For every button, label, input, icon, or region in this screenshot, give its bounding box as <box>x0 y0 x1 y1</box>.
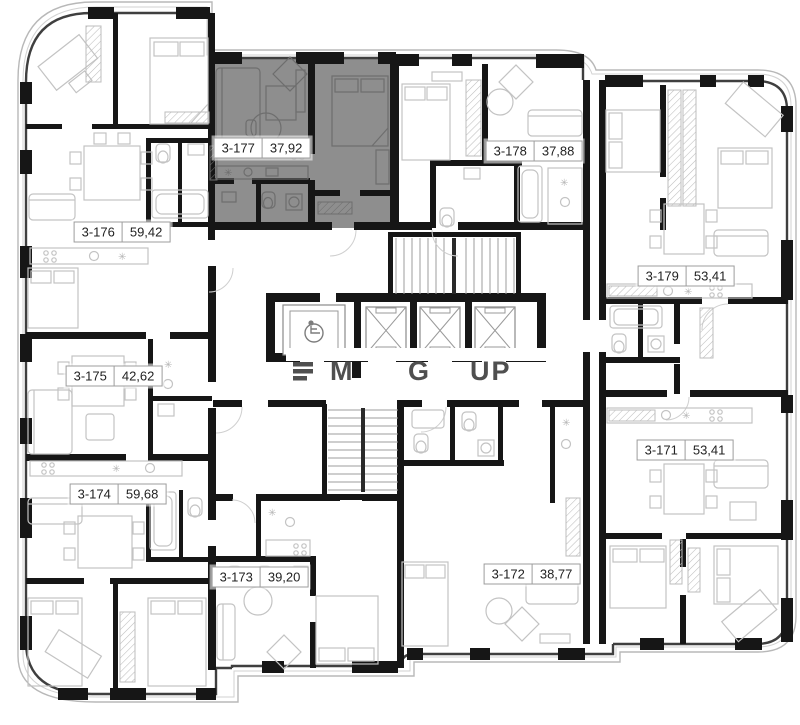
svg-text:✳: ✳ <box>224 168 232 179</box>
unit-chip-3-173[interactable]: 3-17339,20 <box>212 567 309 588</box>
unit-id: 3-177 <box>215 139 262 158</box>
unit-id: 3-179 <box>639 267 686 286</box>
svg-text:✳: ✳ <box>268 508 276 519</box>
svg-text:✳: ✳ <box>562 418 570 429</box>
svg-text:✳: ✳ <box>164 360 172 371</box>
unit-area: 37,92 <box>262 139 310 158</box>
unit-area: 42,62 <box>114 367 162 386</box>
unit-area: 38,77 <box>532 565 580 584</box>
unit-id: 3-172 <box>485 565 532 584</box>
unit-chip-3-174[interactable]: 3-17459,68 <box>70 484 167 505</box>
unit-id: 3-176 <box>75 223 122 242</box>
floorplan-page: M G UP ✳ <box>0 0 800 725</box>
unit-id: 3-174 <box>71 485 118 504</box>
svg-text:✳: ✳ <box>560 178 568 189</box>
unit-id: 3-178 <box>487 142 534 161</box>
unit-chip-3-172[interactable]: 3-17238,77 <box>484 564 581 585</box>
elevator-shaft-2 <box>420 307 460 354</box>
elevator-shaft-1 <box>366 307 406 354</box>
unit-area: 59,68 <box>118 485 166 504</box>
floorplan-svg: M G UP ✳ <box>0 0 800 725</box>
svg-text:✳: ✳ <box>684 287 692 298</box>
unit-chip-3-176[interactable]: 3-17659,42 <box>74 222 171 243</box>
unit-id: 3-173 <box>213 568 260 587</box>
svg-text:✳: ✳ <box>682 411 690 422</box>
unit-id: 3-175 <box>67 367 114 386</box>
elevator-shaft-3 <box>475 307 515 354</box>
svg-text:✳: ✳ <box>112 464 120 475</box>
unit-area: 53,41 <box>686 267 734 286</box>
elevator-accessible <box>283 305 345 355</box>
unit-area: 59,42 <box>122 223 170 242</box>
elevator-bank <box>283 305 515 355</box>
unit-area: 39,20 <box>260 568 308 587</box>
stairs-bottom <box>328 408 398 492</box>
unit-chip-3-175[interactable]: 3-17542,62 <box>66 366 163 387</box>
unit-area: 37,88 <box>534 142 582 161</box>
unit-chip-3-177[interactable]: 3-17737,92 <box>214 138 311 159</box>
unit-area: 53,41 <box>685 441 733 460</box>
unit-id: 3-171 <box>638 441 685 460</box>
unit-chip-3-179[interactable]: 3-17953,41 <box>638 266 735 287</box>
watermark: M G UP <box>286 348 546 386</box>
stairs-top <box>396 238 514 294</box>
svg-text:✳: ✳ <box>118 252 126 263</box>
unit-chip-3-171[interactable]: 3-17153,41 <box>637 440 734 461</box>
unit-chip-3-178[interactable]: 3-17837,88 <box>486 141 583 162</box>
